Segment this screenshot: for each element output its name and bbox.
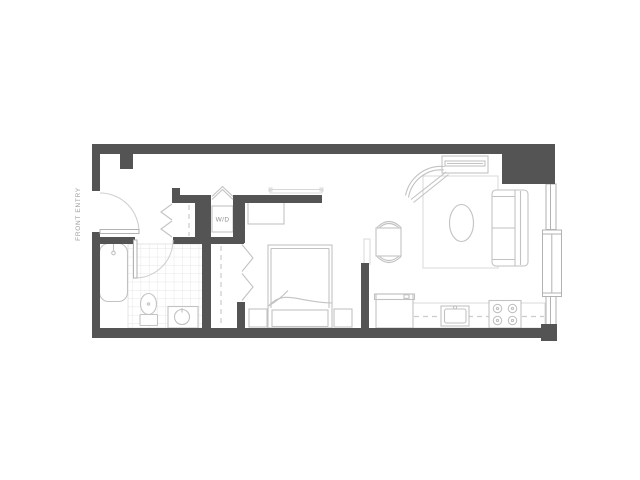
washer-dryer-label: W/D [216, 217, 230, 224]
wall-segment [92, 328, 545, 338]
dining-set [376, 222, 401, 263]
wall-segment [237, 195, 322, 203]
divider-wall-cap [364, 239, 370, 264]
balcony-door [543, 230, 562, 297]
coat-closet-bifold-doors [161, 204, 172, 237]
wall-segment [202, 237, 211, 328]
wall-segment [361, 263, 369, 328]
bed [268, 245, 332, 328]
kitchen-counter [413, 303, 545, 328]
wall-segment [502, 144, 555, 184]
wall-segment [237, 302, 245, 328]
wall-segment [541, 324, 557, 341]
kitchen-sink [441, 306, 469, 326]
floor-plan-page: W/D [0, 0, 640, 480]
entry-door [100, 193, 139, 234]
dining-chair-north [377, 222, 401, 228]
cooktop [489, 301, 521, 329]
refrigerator [375, 294, 415, 328]
dining-table [376, 228, 401, 256]
wall-segment [120, 144, 133, 169]
nightstand-right [334, 309, 352, 327]
wall-segment [92, 144, 100, 191]
wall-segment [92, 237, 135, 244]
wall-segment [92, 244, 100, 338]
wall-segment [195, 203, 203, 238]
toilet [140, 294, 158, 326]
washer-dryer-unit: W/D [212, 206, 233, 232]
bedroom-closet-bifold-doors [242, 245, 253, 301]
wall-segment [172, 188, 180, 196]
wall-segment [92, 144, 502, 154]
dresser [248, 201, 284, 224]
washer-dryer-bifold-doors [212, 187, 233, 200]
wall-segment [202, 195, 211, 237]
kitchen [375, 294, 546, 328]
floor-plan-drawing: W/D [0, 0, 640, 480]
bedroom-furniture [248, 188, 352, 328]
vanity-sink [168, 307, 198, 329]
nightstand-left [249, 309, 267, 327]
front-entry-label: FRONT ENTRY [75, 187, 82, 241]
wall-segment [172, 195, 203, 203]
area-rug [423, 176, 498, 268]
coffee-table [450, 205, 474, 242]
sofa [492, 190, 528, 266]
bathtub [100, 244, 128, 302]
dining-chair-south [377, 257, 401, 263]
wall-shelf [269, 188, 323, 193]
media-console [442, 156, 488, 173]
